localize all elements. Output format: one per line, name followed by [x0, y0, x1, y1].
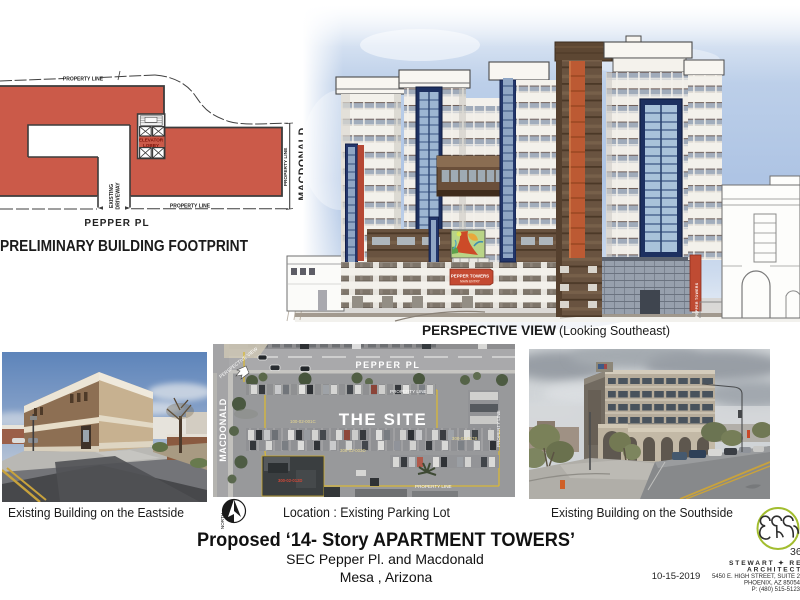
svg-text:PROPERTY LINE: PROPERTY LINE [415, 484, 452, 489]
svg-text:LOBBY: LOBBY [143, 143, 159, 148]
svg-text:SEC Pepper Pl. and Macdonald: SEC Pepper Pl. and Macdonald [286, 551, 484, 567]
svg-text:Mesa , Arizona: Mesa , Arizona [340, 569, 433, 585]
svg-text:DRIVEWAY: DRIVEWAY [116, 182, 122, 210]
svg-text:ARCHITECTURE: ARCHITECTURE [747, 567, 800, 574]
svg-text:EXISTING: EXISTING [109, 184, 115, 208]
svg-text:5450 E. HIGH STREET, SUITE 2: 5450 E. HIGH STREET, SUITE 2 [712, 574, 800, 580]
svg-text:P: (480) 515-5123: P: (480) 515-5123 [752, 587, 800, 593]
svg-text:PROPERTY LINE: PROPERTY LINE [496, 410, 501, 447]
svg-text:(Looking Southeast): (Looking Southeast) [559, 324, 670, 338]
svg-text:300-02-012D: 300-02-012D [278, 478, 302, 483]
svg-text:MAIN ENTRY: MAIN ENTRY [460, 280, 481, 284]
svg-text:300-02-017B: 300-02-017B [452, 436, 477, 441]
svg-text:THE SITE: THE SITE [339, 410, 428, 429]
svg-text:360: 360 [790, 546, 800, 558]
svg-text:PROPERTY LINE: PROPERTY LINE [283, 147, 289, 186]
svg-text:PERSPECTIVE VIEW: PERSPECTIVE VIEW [422, 323, 556, 338]
svg-text:PEPPER PL: PEPPER PL [356, 360, 421, 370]
svg-text:PEPPER PL: PEPPER PL [84, 218, 149, 229]
svg-text:PROPERTY LINE: PROPERTY LINE [63, 77, 104, 83]
svg-text:Proposed ‘14- Story APARTMENT: Proposed ‘14- Story APARTMENT TOWERS’ [197, 530, 575, 551]
svg-text:PROPERTY LINE: PROPERTY LINE [390, 389, 427, 394]
svg-text:PROPERTY LINE: PROPERTY LINE [170, 204, 211, 210]
svg-text:300-02-003D: 300-02-003D [340, 448, 366, 453]
svg-text:PEPPER TOWERS: PEPPER TOWERS [695, 282, 699, 317]
svg-text:Existing Building on the Easts: Existing Building on the Eastside [8, 505, 184, 520]
svg-text:Location : Existing Parking Lo: Location : Existing Parking Lot [283, 505, 450, 520]
svg-text:NORTH: NORTH [220, 513, 225, 529]
svg-text:10-15-2019: 10-15-2019 [652, 571, 701, 582]
svg-text:PHOENIX, AZ 85054: PHOENIX, AZ 85054 [744, 581, 800, 587]
svg-text:MACDONALD: MACDONALD [218, 398, 228, 462]
svg-text:100-02-001C: 100-02-001C [290, 419, 316, 424]
svg-text:PEPPER TOWERS: PEPPER TOWERS [451, 274, 489, 279]
svg-text:PRELIMINARY BUILDING FOOTPRINT: PRELIMINARY BUILDING FOOTPRINT [0, 238, 248, 255]
svg-text:Existing Building on the South: Existing Building on the Southside [551, 505, 733, 520]
